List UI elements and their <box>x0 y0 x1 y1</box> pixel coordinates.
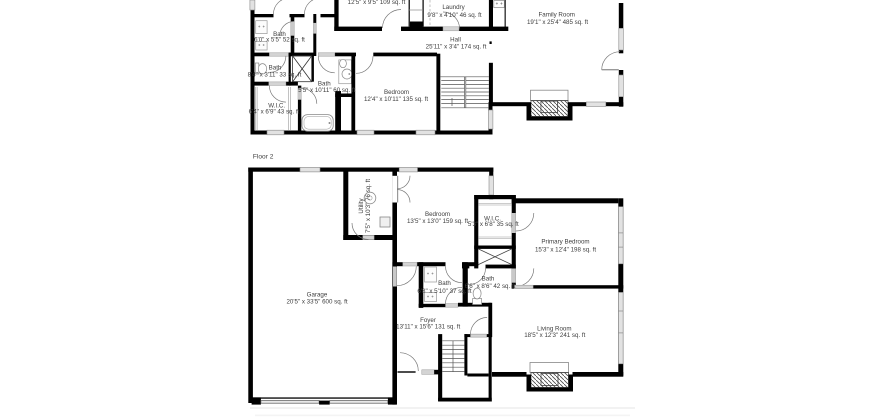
svg-text:Utility: Utility <box>358 198 365 214</box>
svg-text:13'11" x 15'6" 131 sq. ft: 13'11" x 15'6" 131 sq. ft <box>396 323 460 330</box>
svg-text:Bath: Bath <box>482 275 495 282</box>
svg-text:13'5" x 13'0" 159 sq. ft: 13'5" x 13'0" 159 sq. ft <box>407 218 468 225</box>
svg-text:18'5" x 12'3" 241 sq. ft: 18'5" x 12'3" 241 sq. ft <box>524 332 585 339</box>
svg-text:9'8" x 4'10" 46 sq. ft: 9'8" x 4'10" 46 sq. ft <box>427 12 482 19</box>
svg-text:6'0" x 5'5" 52 sq. ft: 6'0" x 5'5" 52 sq. ft <box>254 37 305 44</box>
svg-text:Floor 2: Floor 2 <box>253 153 274 160</box>
svg-text:Bedroom: Bedroom <box>384 89 409 96</box>
svg-text:20'5" x 33'5" 600 sq. ft: 20'5" x 33'5" 600 sq. ft <box>286 299 347 306</box>
svg-text:25'11" x 3'4" 174 sq. ft: 25'11" x 3'4" 174 sq. ft <box>426 43 487 50</box>
svg-text:Bath: Bath <box>438 280 451 287</box>
svg-text:15'3" x 12'4" 198 sq. ft: 15'3" x 12'4" 198 sq. ft <box>535 247 596 254</box>
svg-text:8'4" x 3'11" 33 sq. ft: 8'4" x 3'11" 33 sq. ft <box>248 71 302 78</box>
svg-text:19'1" x 25'4" 485 sq. ft: 19'1" x 25'4" 485 sq. ft <box>527 19 588 26</box>
svg-text:Family Room: Family Room <box>538 12 574 19</box>
svg-text:7'5" x 10'3" 76 sq. ft: 7'5" x 10'3" 76 sq. ft <box>365 179 372 234</box>
svg-text:12'4" x 10'11" 135 sq. ft: 12'4" x 10'11" 135 sq. ft <box>364 96 428 103</box>
svg-text:6'4" x 6'9" 43 sq. ft: 6'4" x 6'9" 43 sq. ft <box>249 109 300 116</box>
svg-text:Garage: Garage <box>307 292 328 299</box>
svg-text:5'5" x 10'11" 60 sq. ft: 5'5" x 10'11" 60 sq. ft <box>298 87 355 94</box>
svg-text:Primary Bedroom: Primary Bedroom <box>541 239 589 246</box>
svg-text:Laundry: Laundry <box>442 4 465 11</box>
svg-text:12'5" x 9'5" 109 sq. ft: 12'5" x 9'5" 109 sq. ft <box>348 0 406 6</box>
svg-text:Bedroom: Bedroom <box>425 211 450 218</box>
svg-text:5'3" x 6'8" 35 sq. ft: 5'3" x 6'8" 35 sq. ft <box>468 221 519 228</box>
svg-text:6'6" x 8'6" 42 sq. ft: 6'6" x 8'6" 42 sq. ft <box>465 283 516 290</box>
